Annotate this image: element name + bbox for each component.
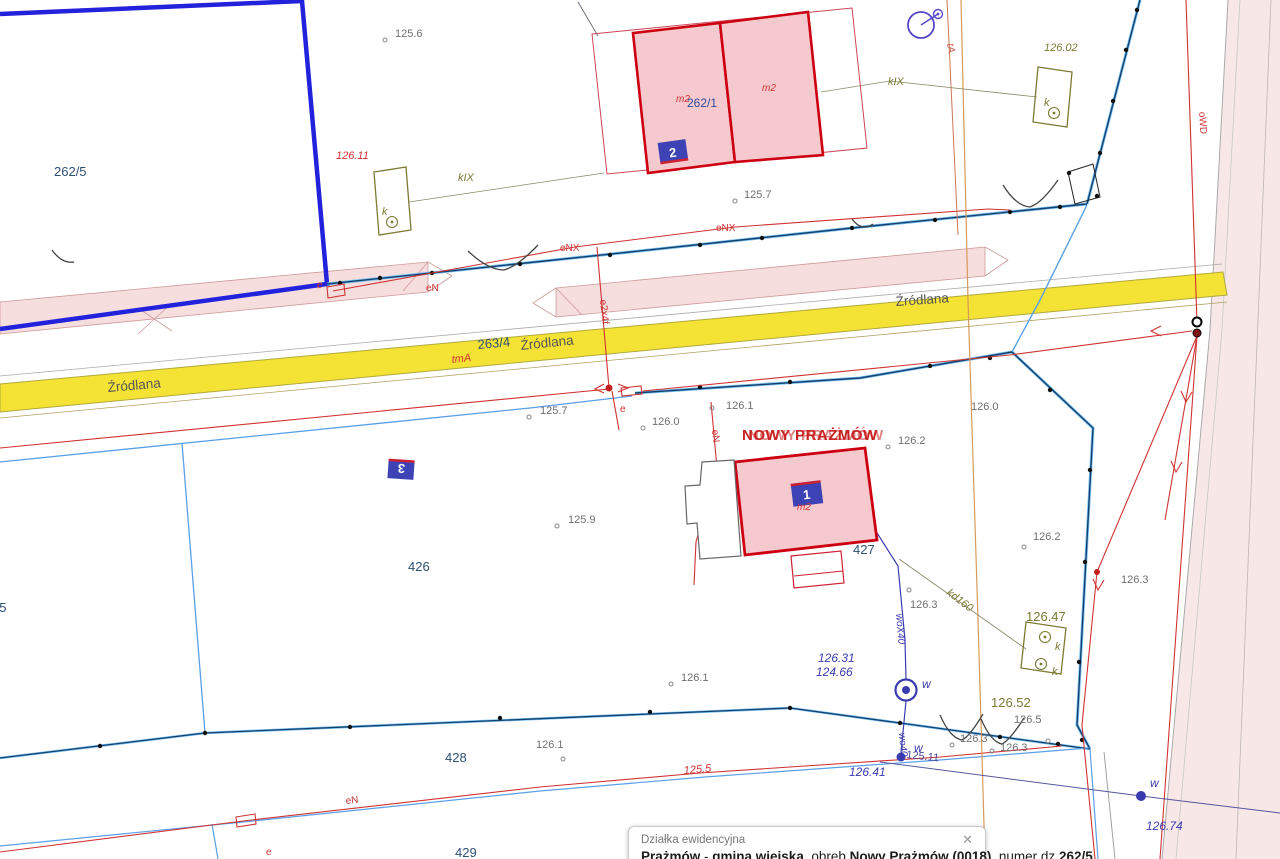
eN-label-a: eN (426, 283, 439, 294)
k-label-c: k (1055, 641, 1061, 653)
e-label-c: e (266, 847, 272, 858)
parcel-428-label: 428 (445, 750, 467, 765)
elev-126-1-c: 126.1 (536, 739, 564, 751)
parcel-info-popup: Działka ewidencyjna ✕ Prażmów - gmina wi… (628, 826, 986, 859)
wo40-label: wo40 (896, 732, 909, 757)
elev-126-47: 126.47 (1026, 609, 1066, 624)
eN-label-b: eN (345, 795, 359, 807)
e-label-a: e (317, 280, 323, 291)
elev-126-2-b: 126.2 (1033, 531, 1061, 543)
cadastral-map-svg: 2 3 1 Źródlana Źródlana Źródlana 263/4 t… (0, 0, 1280, 859)
popup-commune: Prażmów (641, 849, 700, 859)
popup-commune-type: gmina wiejska (712, 849, 804, 859)
popup-district: Nowy Prażmów (0018) (850, 849, 992, 859)
eN-label-vertical: eN (709, 429, 721, 443)
e-label-b: e (620, 404, 626, 415)
elev-126-0-a: 126.0 (652, 416, 680, 428)
w-label-b: w (914, 741, 924, 755)
parcel-boundaries (0, 0, 1140, 859)
elev-125-9: 125.9 (568, 514, 596, 526)
w-label-c: w (1150, 776, 1160, 790)
woX40-label: woX40 (893, 613, 907, 645)
k-label-d: k (1052, 666, 1058, 678)
elev-126-52: 126.52 (991, 695, 1031, 710)
pole-symbol-icon (1193, 318, 1202, 327)
elev-125-7-a: 125.7 (744, 189, 772, 201)
elev-126-3-a: 126.3 (910, 599, 938, 611)
parcel-263-4-label: 263/4 (477, 334, 511, 352)
elev-126-3-d: 126.3 (1000, 742, 1028, 754)
elev-126-02: 126.02 (1044, 42, 1078, 54)
parcel-427-label: 427 (853, 542, 875, 557)
tmA-label: tmA (451, 352, 472, 366)
elev-126-1-b: 126.1 (681, 672, 709, 684)
meas-125-5: 125.5 (683, 763, 712, 777)
oWD-label: oWD (1196, 111, 1209, 134)
building-1-annex (791, 551, 844, 588)
elev-125-7-b: 125.7 (540, 405, 568, 417)
red-utility-lines (0, 0, 1197, 859)
m2-label-c: m2 (797, 502, 811, 513)
m2-label-a: m2 (676, 94, 690, 105)
k-label-a: k (382, 206, 388, 218)
popup-parcel-number: 262/5 (1059, 849, 1093, 859)
elev-125-6: 125.6 (395, 28, 423, 40)
kIX-label-b: kIX (888, 76, 905, 88)
map-canvas[interactable]: 2 3 1 Źródlana Źródlana Źródlana 263/4 t… (0, 0, 1280, 859)
badge-3-label: 3 (397, 461, 405, 476)
parcel-429-label: 429 (455, 845, 477, 859)
elev-126-5: 126.5 (1014, 714, 1042, 726)
close-icon[interactable]: ✕ (962, 834, 973, 845)
elev-124-66: 124.66 (816, 665, 853, 679)
elev-126-3-b: 126.3 (1121, 574, 1149, 586)
elev-126-0-b: 126.0 (971, 401, 999, 413)
popup-parcel-info: Prażmów - gmina wiejska, obręb Nowy Praż… (641, 849, 973, 859)
kIX-label-a: kIX (458, 172, 475, 184)
k-label-b: k (1044, 97, 1050, 109)
badge-2: 2 (658, 139, 689, 164)
parcel-262-1-label: 262/1 (687, 96, 717, 110)
elev-126-74: 126.74 (1146, 819, 1183, 833)
elev-126-31: 126.31 (818, 651, 855, 665)
elev-126-11: 126.11 (336, 150, 369, 162)
place-name-label: NOWY PRAŻMÓW (742, 426, 878, 444)
popup-title: Działka ewidencyjna (641, 834, 745, 846)
elev-126-41: 126.41 (849, 765, 886, 779)
elev-126-2-a: 126.2 (898, 435, 926, 447)
eNX-label-a: eNX (560, 243, 580, 254)
parcel-262-5-label: 262/5 (54, 164, 87, 179)
parcel-25-label: 25 (0, 600, 6, 615)
eNX-label-b: eNX (716, 223, 736, 234)
elev-126-1-a: 126.1 (726, 400, 754, 412)
w-label-a: w (922, 677, 932, 691)
m2-label-b: m2 (762, 83, 776, 94)
parcel-426-label: 426 (408, 559, 430, 574)
tA-label: tA (944, 43, 957, 55)
outbuilding-footprint (685, 460, 741, 559)
badge-3: 3 (387, 459, 414, 480)
elev-126-3-c: 126.3 (960, 733, 988, 745)
